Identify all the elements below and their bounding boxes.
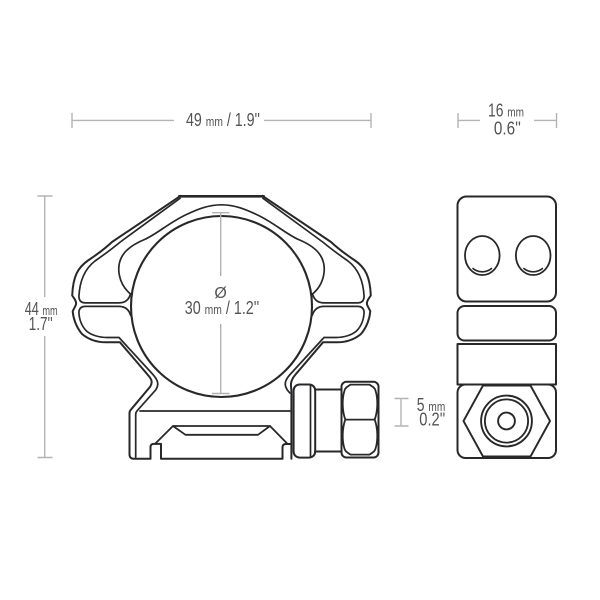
svg-text:49 mm / 1.9'': 49 mm / 1.9'' bbox=[186, 110, 260, 130]
svg-text:0.6'': 0.6'' bbox=[494, 118, 521, 138]
svg-text:1.7'': 1.7'' bbox=[29, 314, 53, 334]
svg-text:0.2'': 0.2'' bbox=[419, 409, 445, 429]
svg-text:30 mm / 1.2'': 30 mm / 1.2'' bbox=[185, 298, 260, 318]
